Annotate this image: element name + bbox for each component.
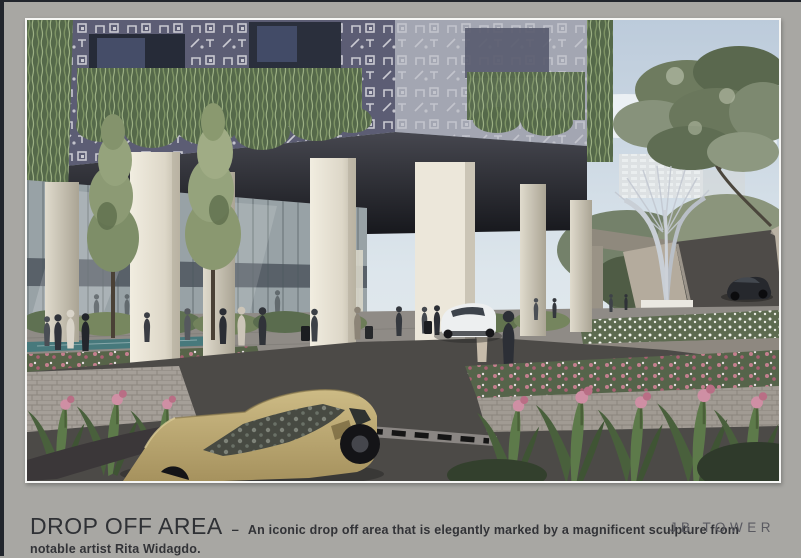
slide-caption: DROP OFF AREA – An iconic drop off area …	[30, 513, 778, 558]
caption-description-line2: notable artist Rita Widagdo.	[30, 542, 201, 556]
caption-description-line1: An iconic drop off area that is elegantl…	[248, 523, 739, 537]
jb-tower-logo: JB TOWER	[670, 520, 775, 535]
facade-window	[465, 28, 549, 78]
man-dark-suit	[503, 311, 515, 368]
corner-green-wall	[587, 20, 613, 162]
window-edge-top	[0, 0, 801, 2]
luggage	[424, 321, 432, 334]
luggage	[365, 326, 373, 339]
architectural-rendering	[27, 20, 779, 481]
caption-title: DROP OFF AREA	[30, 513, 223, 540]
window-edge-left	[0, 0, 4, 556]
rendering-frame	[25, 18, 781, 483]
caption-separator: –	[232, 522, 239, 537]
luggage	[301, 326, 310, 341]
